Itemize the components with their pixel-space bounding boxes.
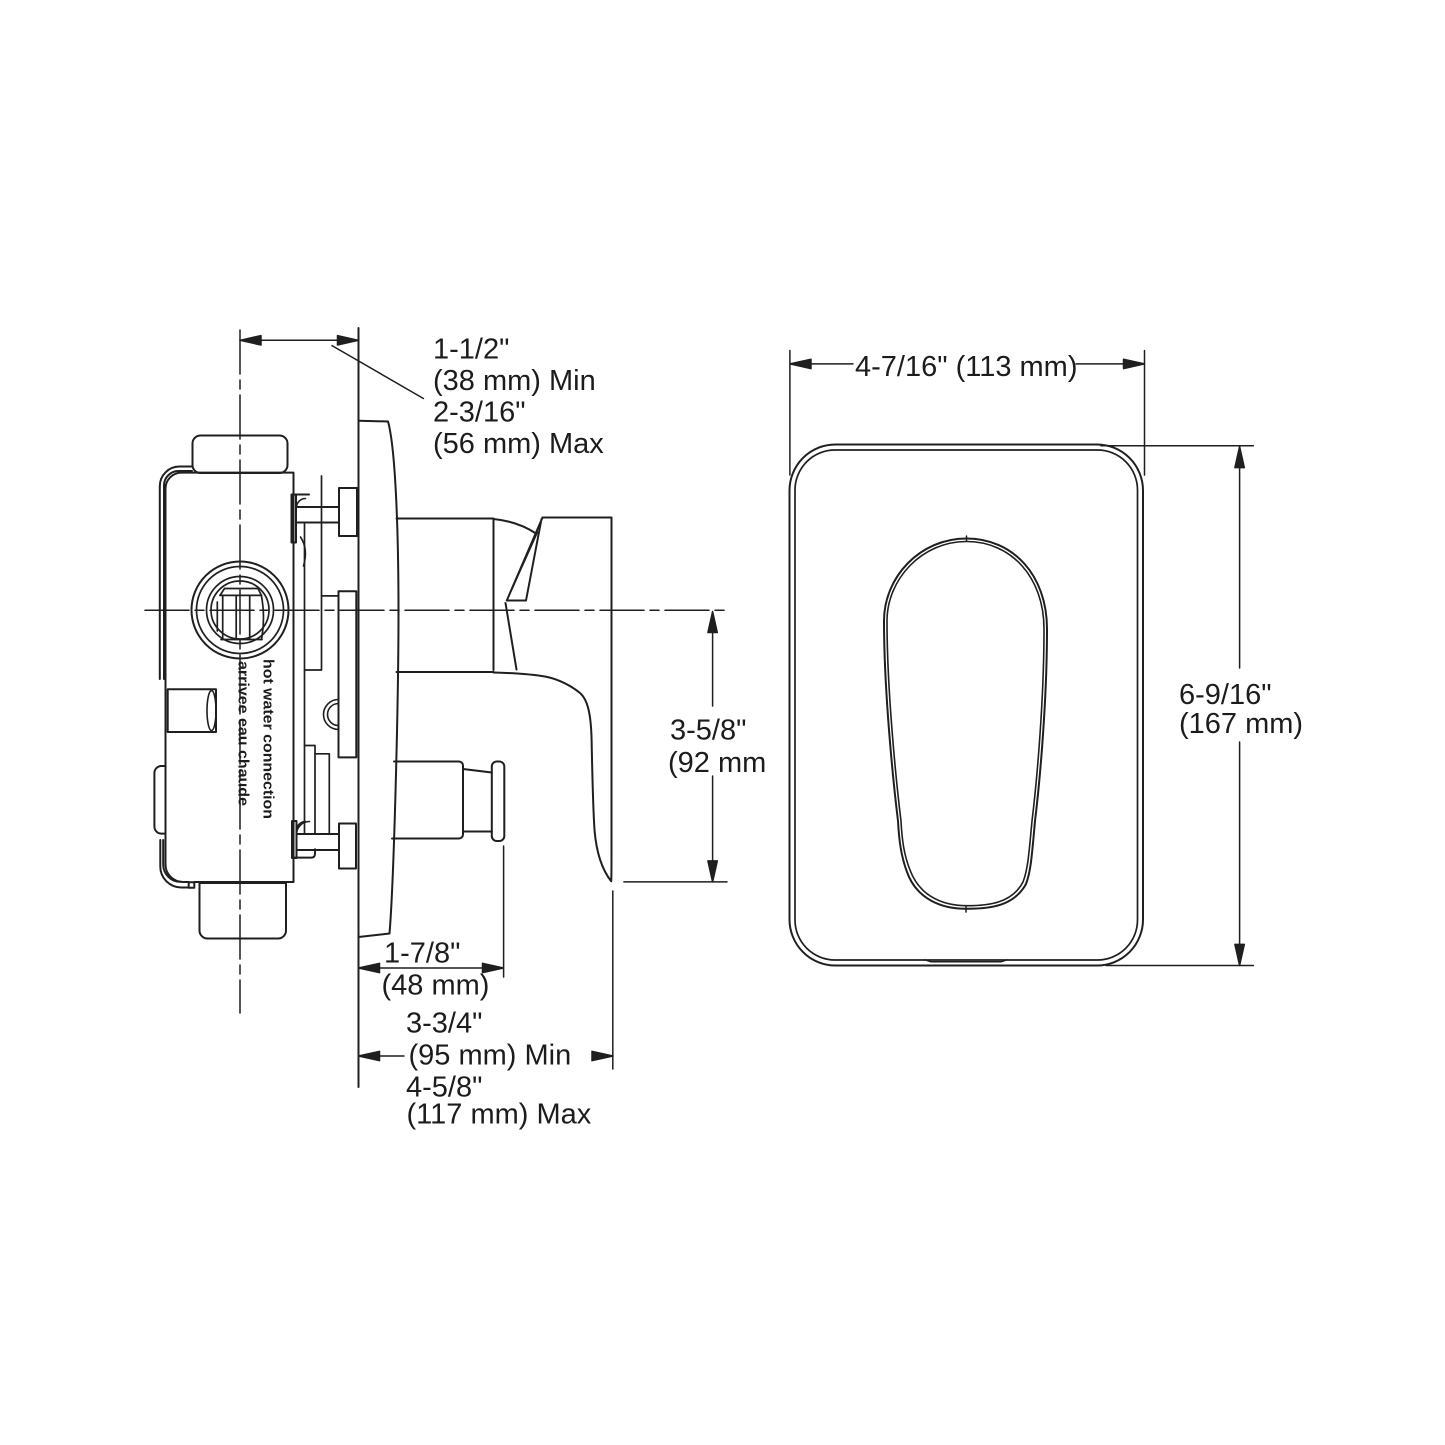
svg-text:3-5/8": 3-5/8" (670, 715, 746, 747)
svg-text:(117 mm) Max: (117 mm) Max (407, 1099, 592, 1131)
svg-text:3-3/4": 3-3/4" (406, 1008, 482, 1040)
svg-text:(95 mm) Min: (95 mm) Min (409, 1040, 572, 1072)
svg-text:1-1/2": 1-1/2" (433, 334, 509, 366)
svg-text:2-3/16": 2-3/16" (433, 397, 526, 429)
svg-text:6-9/16": 6-9/16" (1179, 679, 1272, 711)
svg-text:arrivee eau chaude: arrivee eau chaude (235, 661, 252, 806)
svg-text:(92 mm: (92 mm (668, 747, 766, 779)
svg-text:(167 mm): (167 mm) (1179, 708, 1303, 740)
svg-text:1-7/8": 1-7/8" (384, 938, 460, 970)
svg-text:(56 mm) Max: (56 mm) Max (433, 428, 604, 460)
svg-text:(48 mm): (48 mm) (382, 970, 490, 1002)
svg-text:hot water connection: hot water connection (260, 659, 277, 819)
svg-text:(38 mm) Min: (38 mm) Min (433, 365, 596, 397)
svg-text:4-7/16" (113 mm): 4-7/16" (113 mm) (855, 351, 1078, 383)
